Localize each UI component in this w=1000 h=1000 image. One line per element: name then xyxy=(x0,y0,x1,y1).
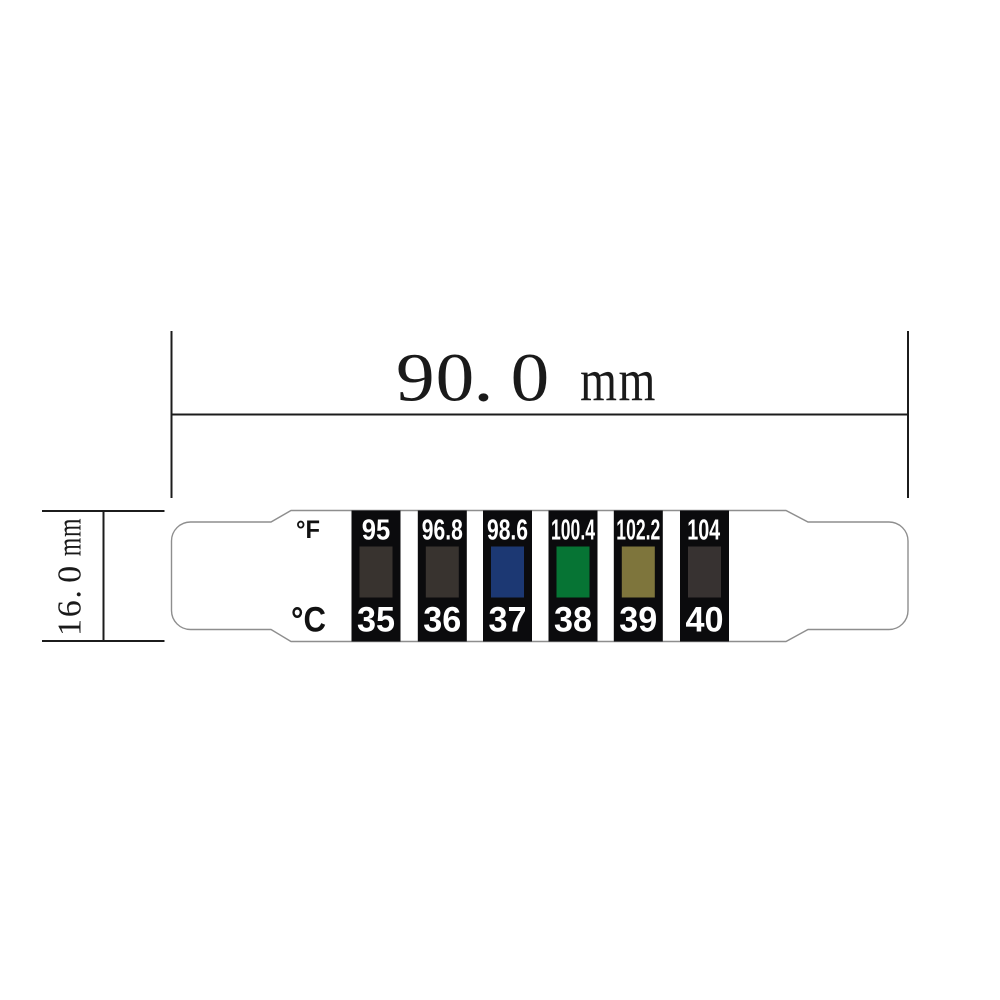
svg-text:102.2: 102.2 xyxy=(616,515,660,547)
svg-text:98.6: 98.6 xyxy=(487,515,528,547)
svg-text:0: 0 xyxy=(511,339,550,415)
svg-text:1: 1 xyxy=(52,619,89,636)
svg-text:.: . xyxy=(52,590,89,599)
svg-text:95: 95 xyxy=(362,515,391,547)
svg-text:36: 36 xyxy=(423,601,461,640)
svg-text:9: 9 xyxy=(396,339,435,415)
svg-text:.: . xyxy=(473,340,494,416)
svg-text:°F: °F xyxy=(296,516,320,544)
svg-text:37: 37 xyxy=(489,601,527,640)
svg-text:mm: mm xyxy=(580,347,657,414)
svg-text:39: 39 xyxy=(619,601,657,640)
svg-text:0: 0 xyxy=(52,566,89,583)
svg-text:6: 6 xyxy=(52,600,89,617)
svg-text:100.4: 100.4 xyxy=(551,515,595,547)
svg-text:0: 0 xyxy=(436,339,475,415)
svg-text:96.8: 96.8 xyxy=(422,515,463,547)
svg-text:35: 35 xyxy=(357,601,395,640)
svg-text:°C: °C xyxy=(291,601,326,640)
svg-text:104: 104 xyxy=(687,515,720,547)
svg-text:mm: mm xyxy=(52,518,89,556)
svg-text:38: 38 xyxy=(554,601,592,640)
svg-text:40: 40 xyxy=(686,601,724,640)
